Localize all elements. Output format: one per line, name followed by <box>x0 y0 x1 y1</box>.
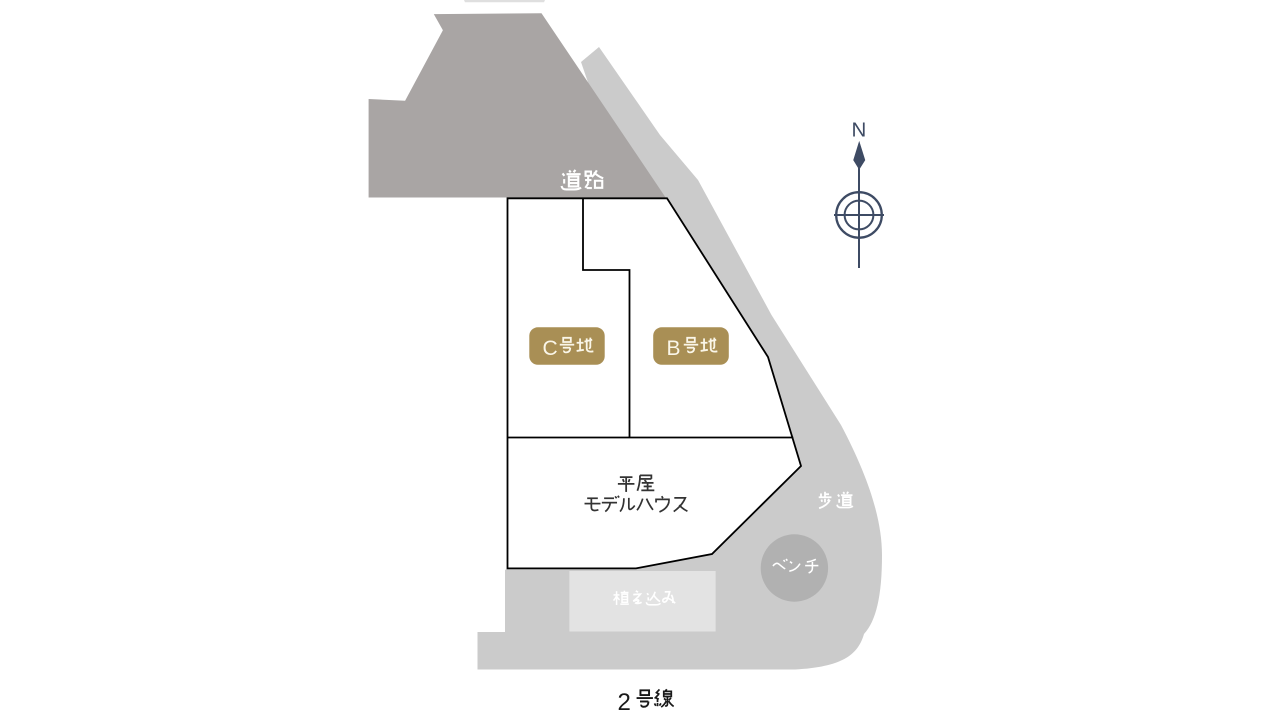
svg-text:C: C <box>543 337 558 360</box>
svg-text:2: 2 <box>618 689 631 716</box>
svg-text:N: N <box>852 119 867 142</box>
svg-text:B: B <box>667 337 681 360</box>
